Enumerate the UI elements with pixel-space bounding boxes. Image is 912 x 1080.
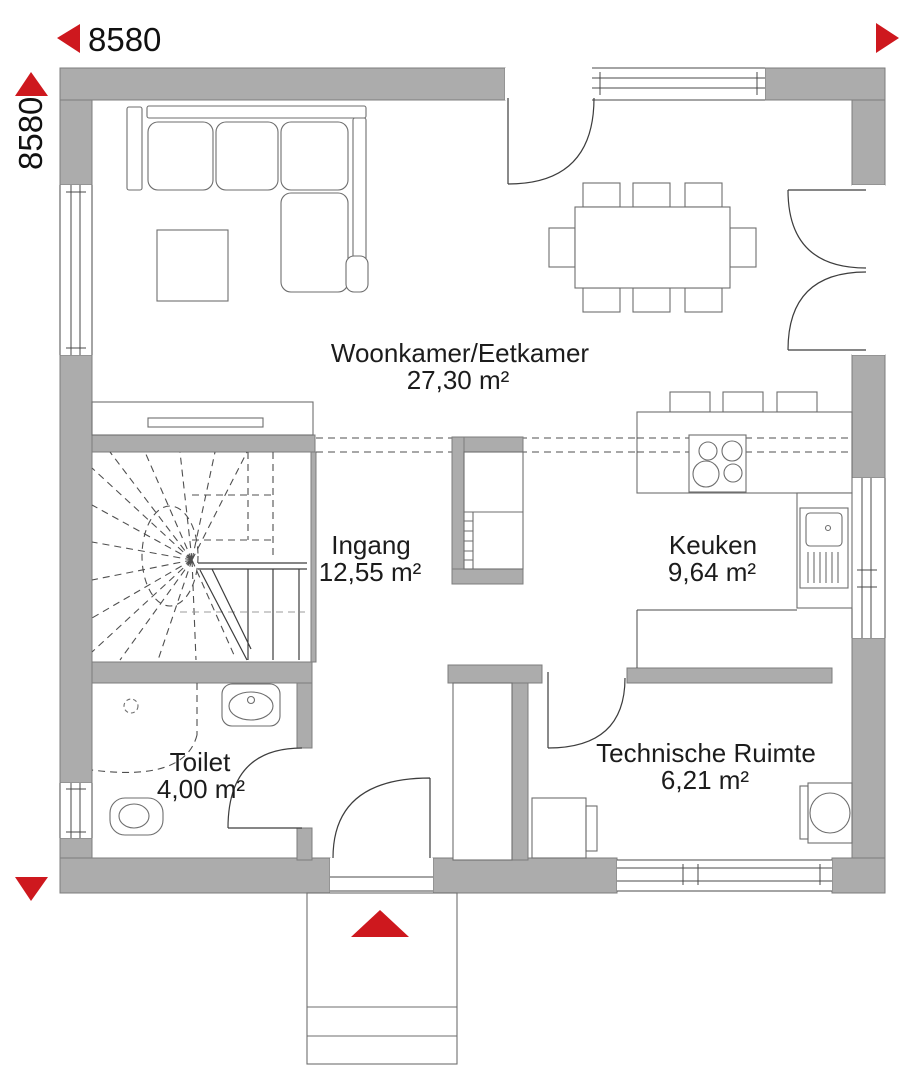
dimension-height-label: 8580 [12,97,49,170]
wc-toilet [110,798,163,835]
dining-chair [633,288,670,312]
dimension-width-label: 8580 [88,21,161,58]
sofa-armrest-left [127,107,142,190]
wall-right-lower [852,638,885,860]
wall-hall-cap [448,665,542,683]
room-area-toilet: 4,00 m² [157,774,245,804]
dining-chair [685,288,722,312]
dining-chair [583,288,620,312]
dining-chair [633,183,670,207]
wall-left-upper [60,100,92,185]
shower-head-icon [124,699,138,713]
washing-machine [800,783,852,843]
wall-right-middle [852,355,885,478]
window-left-toilet [60,783,92,838]
dining-chair [583,183,620,207]
room-label-living: Woonkamer/Eetkamer [331,338,590,368]
wall-hall-right [512,683,528,860]
staircase [92,452,307,660]
central-closet [452,437,523,584]
wall-technical-top [627,668,832,683]
bar-stool [670,392,710,412]
room-area-living: 27,30 m² [407,365,510,395]
bar-stool [723,392,763,412]
sofa-cushion [281,122,348,190]
window-left-living [60,185,92,355]
wall-top-left [60,68,505,100]
washbasin [222,684,280,726]
arrow-up-icon [15,72,48,96]
wall-toilet-top [92,662,312,683]
appliance-left [532,798,597,858]
room-area-kitchen: 9,64 m² [668,557,756,587]
dining-chair [685,183,722,207]
wall-top-right [765,68,885,100]
window-bottom-technical [617,860,832,891]
door-french-right [788,185,885,355]
wall-bottom-middle [433,858,617,893]
door-top-terrace [505,68,594,184]
sofa-backrest-right [353,118,366,262]
room-label-entrance: Ingang [331,530,411,560]
room-area-entrance: 12,55 m² [319,557,422,587]
coffee-table [157,230,228,301]
wall-toilet-right-upper [297,683,312,748]
sofa-cushion [216,122,278,190]
sofa-cushion [148,122,213,190]
entrance-arrow-icon [351,910,409,937]
wall-left-middle [60,355,92,783]
wall-corner-bottom-right [832,858,885,893]
wall-stair-divider [311,452,316,662]
arrow-right-icon [876,23,899,53]
hall-closet [453,683,512,860]
door-entrance [330,778,433,893]
wall-bottom-left [60,858,330,893]
dining-set [549,183,756,312]
room-area-technical: 6,21 m² [661,765,749,795]
dining-chair [549,228,575,267]
window-right-kitchen [852,478,885,638]
room-label-technical: Technische Ruimte [596,738,816,768]
wall-right-upper [852,100,885,185]
dining-chair [730,228,756,267]
sink-counter [797,493,852,608]
sofa-chaise [281,193,348,292]
room-label-kitchen: Keuken [669,530,757,560]
porch-steps [307,1007,457,1036]
sofa-backrest-top [147,106,366,118]
sofa-corner [346,256,368,292]
stair-winder-dashed [92,452,273,660]
bar-stool [777,392,817,412]
arrow-down-icon [15,877,48,901]
dining-table [575,207,730,288]
window-top [592,68,765,100]
wall-toilet-right-lower [297,828,312,860]
sideboard-niche [92,402,313,435]
floorplan-page: 8580 8580 Woonkamer/Eetkamer 27,30 m² In… [0,0,912,1080]
floorplan-drawing: 8580 8580 Woonkamer/Eetkamer 27,30 m² In… [0,0,912,1080]
wall-under-niche [92,435,315,452]
door-technical [548,672,625,748]
arrow-left-icon [57,24,80,53]
kitchen-zone-line [637,610,797,668]
room-label-toilet: Toilet [170,747,231,777]
